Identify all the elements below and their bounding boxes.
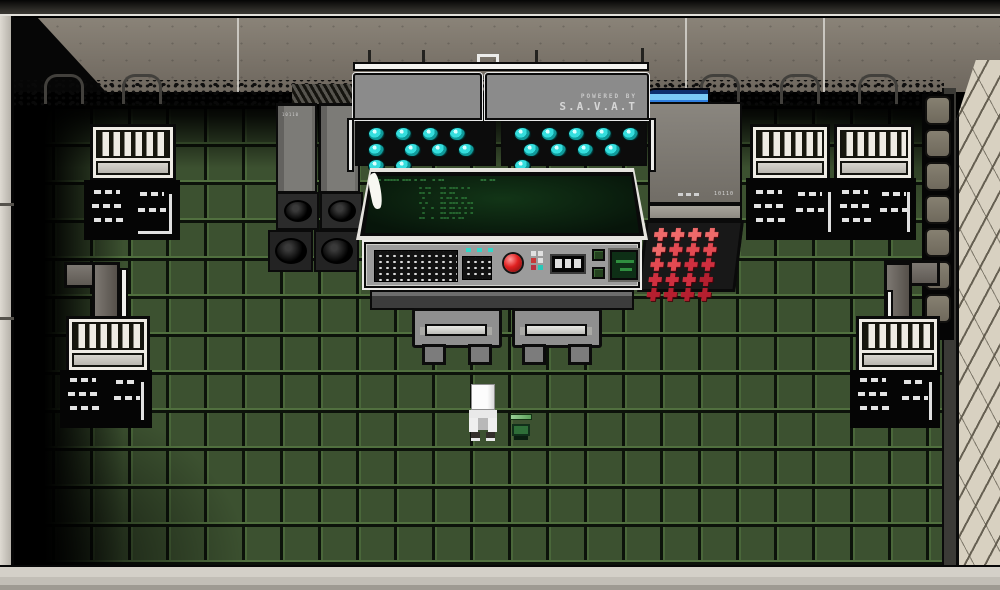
doorway-arch bbox=[858, 74, 898, 104]
rbtn bbox=[665, 273, 680, 286]
screen-text-line: == ===== === = == = == == == bbox=[375, 179, 629, 184]
tlight bbox=[368, 127, 385, 141]
speaker-port bbox=[268, 230, 313, 272]
seat-leg bbox=[568, 344, 592, 365]
panel-marks bbox=[860, 406, 890, 410]
rbtn bbox=[669, 243, 684, 256]
vent-bar bbox=[840, 161, 908, 175]
tlight bbox=[422, 127, 439, 141]
powered-by-label: POWERED BY bbox=[581, 93, 637, 100]
console-seat bbox=[512, 308, 602, 366]
left-wall bbox=[0, 16, 14, 590]
seat-leg bbox=[522, 344, 546, 365]
wall-seam bbox=[237, 18, 239, 92]
vent-bar bbox=[862, 353, 934, 367]
gtile bbox=[925, 228, 951, 257]
seat-leg bbox=[468, 344, 492, 365]
player-character[interactable] bbox=[471, 384, 495, 410]
brand-label: S.A.V.A.T bbox=[559, 100, 637, 113]
rbtn bbox=[648, 273, 663, 286]
panel-marks bbox=[842, 218, 872, 222]
rbtn bbox=[686, 243, 701, 256]
cable-bundle bbox=[292, 84, 354, 104]
mini-display bbox=[610, 250, 638, 280]
panel-marks bbox=[842, 190, 868, 194]
console-head: POWERED BY S.A.V.A.T ▪▪▪▪▪▪▪▪▪▪▪▪▪▪▪▪▪▪▪… bbox=[353, 73, 649, 120]
panel-marks bbox=[138, 208, 166, 212]
stone-texture bbox=[959, 60, 1000, 565]
panel-marks bbox=[796, 208, 824, 212]
unit-label: 10110 bbox=[282, 112, 299, 117]
tlight bbox=[550, 143, 567, 157]
rbtn bbox=[650, 258, 665, 271]
panel-corner bbox=[929, 382, 932, 420]
panel-corner bbox=[169, 194, 172, 232]
unit-label: 10110 bbox=[714, 191, 734, 197]
bottom-wall bbox=[0, 565, 1000, 590]
small-key bbox=[565, 259, 572, 268]
indicator-light-panel bbox=[355, 121, 496, 166]
vent-slats bbox=[72, 322, 144, 350]
player-foot bbox=[471, 432, 480, 441]
indicator-grid bbox=[530, 250, 545, 284]
white-pipe bbox=[886, 290, 893, 318]
status-led bbox=[477, 248, 482, 252]
wall-seam bbox=[823, 18, 825, 92]
player-arm bbox=[469, 418, 478, 432]
status-led bbox=[466, 248, 471, 252]
panel-corner bbox=[138, 231, 172, 234]
port-hole bbox=[321, 238, 353, 264]
indicator bbox=[531, 251, 536, 256]
display-mark bbox=[620, 268, 632, 271]
tlight bbox=[595, 127, 612, 141]
panel-marks bbox=[840, 204, 872, 208]
wall-seam bbox=[0, 317, 14, 320]
indicator bbox=[538, 258, 543, 263]
panel-marks bbox=[94, 218, 124, 222]
panel-marks bbox=[678, 193, 700, 196]
doorway-arch bbox=[122, 74, 162, 104]
machine-base bbox=[84, 180, 180, 240]
screen-text-line: == = === = == bbox=[413, 217, 629, 222]
doorway-arch bbox=[780, 74, 820, 104]
ceiling-strip bbox=[0, 0, 1000, 16]
tlight bbox=[458, 143, 475, 157]
panel-marks bbox=[140, 192, 164, 196]
tlight bbox=[449, 127, 466, 141]
panel-marks bbox=[756, 190, 782, 194]
player-arm bbox=[488, 418, 497, 432]
tlight bbox=[404, 143, 421, 157]
tlight bbox=[541, 127, 558, 141]
rbtn bbox=[704, 228, 719, 241]
display-mark bbox=[616, 260, 634, 263]
tlight bbox=[368, 143, 385, 157]
tlight bbox=[622, 127, 639, 141]
panel-marks bbox=[756, 218, 786, 222]
player-torso bbox=[478, 418, 488, 430]
vent-slats bbox=[756, 130, 824, 158]
small-key bbox=[555, 259, 562, 268]
vent-machine bbox=[750, 124, 830, 181]
speaker-port bbox=[320, 192, 363, 230]
rbtn bbox=[670, 228, 685, 241]
rbtn bbox=[703, 243, 718, 256]
machine-base bbox=[850, 370, 940, 428]
indicator bbox=[538, 251, 543, 256]
vent-bar bbox=[96, 161, 170, 175]
tlight bbox=[395, 127, 412, 141]
gtile bbox=[925, 129, 951, 158]
panel-marks bbox=[858, 392, 890, 396]
vent-machine bbox=[834, 124, 914, 181]
panel-marks bbox=[754, 204, 786, 208]
tlight bbox=[431, 143, 448, 157]
panel-marks bbox=[92, 204, 124, 208]
green-module bbox=[592, 249, 605, 261]
companion-unit-top bbox=[510, 414, 532, 420]
wall-seam bbox=[0, 203, 14, 206]
rbtn bbox=[699, 273, 714, 286]
panel-marks bbox=[880, 208, 908, 212]
vent-slats bbox=[840, 130, 908, 158]
gray-pipe-elbow bbox=[92, 262, 120, 320]
gtile bbox=[925, 96, 951, 125]
machine-base bbox=[60, 370, 152, 428]
panel-corner bbox=[828, 192, 831, 232]
small-key bbox=[574, 259, 581, 268]
crt-text: == ===== === = == = == == == = == == ===… bbox=[375, 179, 629, 222]
vent-machine bbox=[90, 124, 176, 181]
player-shoulders bbox=[469, 410, 497, 418]
speaker-panel: 10110 bbox=[276, 103, 317, 193]
tlight bbox=[604, 143, 621, 157]
panel-marks bbox=[70, 378, 96, 382]
gtile bbox=[925, 162, 951, 191]
machine-base bbox=[746, 178, 916, 240]
tlight bbox=[568, 127, 585, 141]
console-lights bbox=[353, 121, 649, 168]
rbtn bbox=[667, 258, 682, 271]
console-top-beam bbox=[353, 62, 649, 71]
console-head-panel-right: POWERED BY S.A.V.A.T ▪▪▪▪▪▪▪▪▪▪▪▪▪▪▪▪▪▪▪… bbox=[485, 73, 649, 120]
panel-marks bbox=[68, 392, 100, 396]
vent-machine bbox=[66, 316, 150, 373]
panel-marks bbox=[904, 380, 926, 384]
rbtn bbox=[680, 288, 695, 301]
port-hole bbox=[275, 238, 307, 264]
vent-machine bbox=[856, 316, 940, 373]
seat-tray bbox=[425, 324, 487, 336]
vent-slats bbox=[862, 322, 934, 350]
rbtn bbox=[653, 228, 668, 241]
gtile bbox=[925, 195, 951, 224]
console-seat bbox=[412, 308, 502, 366]
panel-marks bbox=[116, 380, 138, 384]
keyboard bbox=[374, 250, 458, 282]
panel-marks bbox=[798, 192, 822, 196]
console-head-panel-left bbox=[353, 73, 482, 120]
seat-tray bbox=[525, 324, 587, 336]
rbtn bbox=[701, 258, 716, 271]
keypad bbox=[462, 256, 492, 280]
rbtn bbox=[682, 273, 697, 286]
brand-subtext: ▪▪▪▪▪▪▪▪▪▪▪▪▪▪▪▪▪▪▪▪▪▪▪▪▪▪ bbox=[590, 113, 637, 117]
port-hole bbox=[328, 200, 356, 222]
companion-unit[interactable] bbox=[512, 424, 530, 436]
wall-seam bbox=[685, 18, 687, 92]
button-cluster bbox=[550, 254, 586, 274]
game-viewport[interactable]: 10110 10110 POWERED BY S.A.V.A.T ▪▪▪▪▪▪▪… bbox=[0, 0, 1000, 590]
companion-unit-base bbox=[514, 436, 528, 440]
crt-monitor: == ===== === = == = == == == = == == ===… bbox=[356, 168, 648, 240]
console-side-trim bbox=[649, 118, 656, 172]
control-panel bbox=[364, 242, 640, 288]
red-button bbox=[504, 254, 522, 272]
rbtn bbox=[687, 228, 702, 241]
speaker-port bbox=[276, 192, 319, 230]
relay-box: 10110 bbox=[648, 102, 742, 204]
white-pipe bbox=[120, 268, 128, 318]
panel-marks bbox=[882, 192, 906, 196]
rbtn bbox=[697, 288, 712, 301]
panel-marks bbox=[114, 396, 140, 400]
green-module bbox=[592, 267, 605, 279]
player-foot bbox=[486, 432, 495, 441]
tlight bbox=[577, 143, 594, 157]
panel-marks bbox=[94, 190, 120, 194]
rbtn bbox=[684, 258, 699, 271]
crt-screen: == ===== === = == = == == == = == == ===… bbox=[365, 176, 639, 233]
indicator-light-panel bbox=[501, 121, 647, 166]
port-hole bbox=[284, 200, 312, 222]
relay-box-bar bbox=[648, 204, 742, 220]
seat-leg bbox=[422, 344, 446, 365]
status-led bbox=[488, 248, 493, 252]
vent-slats bbox=[96, 130, 170, 158]
rbtn bbox=[646, 288, 661, 301]
speaker-port bbox=[314, 230, 359, 272]
tlight bbox=[523, 143, 540, 157]
panel-corner bbox=[907, 192, 910, 232]
indicator bbox=[531, 258, 536, 263]
vent-bar bbox=[72, 353, 144, 367]
tlight bbox=[514, 127, 531, 141]
vent-bar bbox=[756, 161, 824, 175]
panel-marks bbox=[902, 396, 928, 400]
panel-corner bbox=[141, 382, 144, 420]
doorway-arch bbox=[44, 74, 84, 104]
rbtn bbox=[652, 243, 667, 256]
indicator bbox=[538, 265, 543, 270]
right-stone-wall bbox=[956, 60, 1000, 565]
console-skirt bbox=[370, 290, 634, 310]
indicator bbox=[531, 265, 536, 270]
red-button-grid bbox=[637, 220, 744, 292]
stone-tile-column bbox=[922, 94, 954, 340]
rbtn bbox=[663, 288, 678, 301]
panel-marks bbox=[860, 378, 886, 382]
panel-marks bbox=[70, 406, 100, 410]
